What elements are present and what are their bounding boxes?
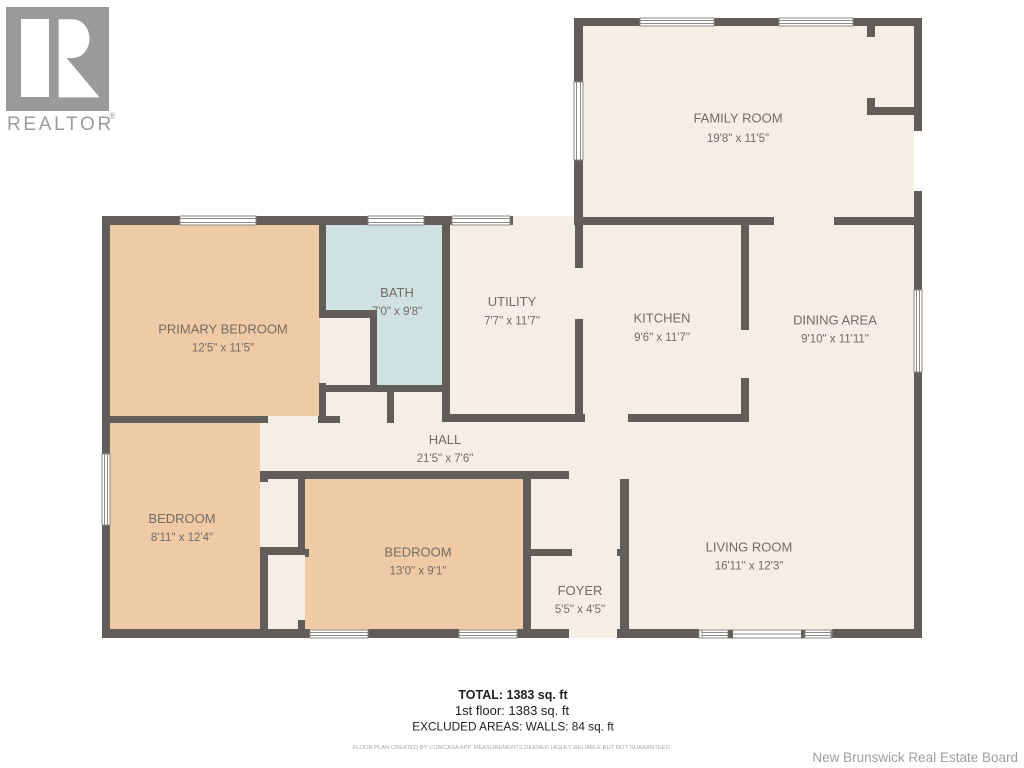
svg-text:FOYER: FOYER: [558, 583, 603, 598]
svg-text:7'7" x 11'7": 7'7" x 11'7": [484, 316, 540, 328]
svg-text:PRIMARY BEDROOM: PRIMARY BEDROOM: [158, 322, 288, 337]
svg-text:5'5" x 4'5": 5'5" x 4'5": [555, 604, 605, 616]
svg-text:8'11" x 12'4": 8'11" x 12'4": [151, 532, 213, 544]
svg-text:New Brunswick Real Estate Boar: New Brunswick Real Estate Board: [812, 750, 1018, 765]
svg-text:BATH: BATH: [380, 285, 414, 300]
svg-text:LIVING ROOM: LIVING ROOM: [706, 540, 793, 555]
svg-text:19'8" x 11'5": 19'8" x 11'5": [707, 133, 769, 145]
svg-text:UTILITY: UTILITY: [488, 294, 537, 309]
svg-text:KITCHEN: KITCHEN: [633, 311, 690, 326]
svg-text:BEDROOM: BEDROOM: [384, 545, 451, 560]
svg-text:®: ®: [109, 111, 116, 121]
svg-text:BEDROOM: BEDROOM: [148, 511, 215, 526]
svg-text:FAMILY ROOM: FAMILY ROOM: [693, 111, 782, 126]
svg-text:HALL: HALL: [429, 432, 462, 447]
svg-text:REALTOR: REALTOR: [7, 114, 114, 135]
svg-text:FLOOR PLAN CREATED BY CUBICASA: FLOOR PLAN CREATED BY CUBICASA APP. MEAS…: [353, 745, 672, 751]
svg-text:DINING AREA: DINING AREA: [793, 313, 877, 328]
svg-text:TOTAL: 1383 sq. ft: TOTAL: 1383 sq. ft: [458, 688, 568, 702]
svg-text:7'0" x 9'8": 7'0" x 9'8": [372, 306, 422, 318]
svg-text:16'11" x 12'3": 16'11" x 12'3": [715, 561, 784, 573]
svg-text:EXCLUDED AREAS: WALLS: 84 sq.: EXCLUDED AREAS: WALLS: 84 sq. ft: [412, 720, 614, 734]
svg-text:1st floor: 1383 sq. ft: 1st floor: 1383 sq. ft: [455, 703, 570, 718]
svg-text:12'5" x 11'5": 12'5" x 11'5": [192, 343, 254, 355]
svg-text:21'5" x 7'6": 21'5" x 7'6": [417, 453, 474, 465]
svg-text:9'10" x 11'11": 9'10" x 11'11": [801, 334, 869, 346]
svg-text:9'6" x 11'7": 9'6" x 11'7": [634, 332, 690, 344]
svg-text:13'0" x 9'1": 13'0" x 9'1": [390, 566, 447, 578]
